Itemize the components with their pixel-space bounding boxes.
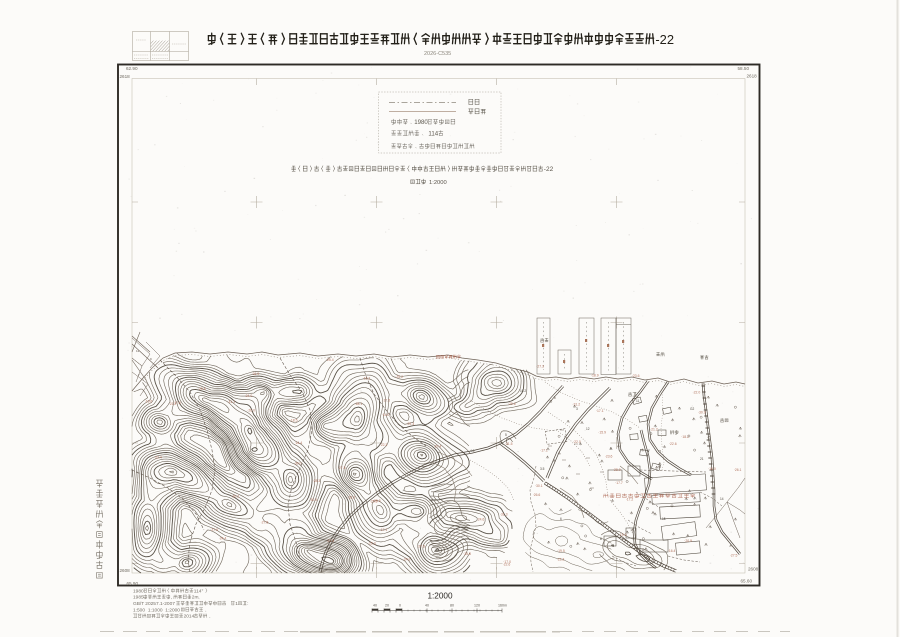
svg-text:·16.0: ·16.0: [708, 467, 716, 471]
svg-text:·23.6: ·23.6: [605, 455, 613, 459]
svg-text:2608: 2608: [120, 568, 131, 573]
svg-text:·26.6: ·26.6: [533, 493, 541, 497]
svg-text:·15.3: ·15.3: [368, 542, 376, 546]
svg-text:2618: 2618: [120, 74, 131, 79]
svg-text:2618: 2618: [747, 74, 758, 79]
svg-text:·18.5: ·18.5: [290, 419, 298, 423]
svg-text:·17.5: ·17.5: [382, 399, 390, 403]
svg-text:·20.6: ·20.6: [198, 387, 206, 391]
svg-text:114°: 114°: [194, 588, 204, 594]
svg-text:·21.2: ·21.2: [650, 428, 658, 432]
svg-text:7: 7: [648, 449, 650, 453]
svg-text:2608: 2608: [748, 567, 759, 572]
svg-text:·17.1: ·17.1: [596, 409, 604, 413]
svg-text:·22.0: ·22.0: [573, 440, 581, 444]
svg-text:1980: 1980: [133, 588, 144, 594]
svg-text:·28.3: ·28.3: [313, 479, 321, 483]
svg-text:·24.4: ·24.4: [219, 537, 227, 541]
svg-text:·26.0: ·26.0: [247, 409, 255, 413]
svg-text:GB/T: GB/T: [133, 601, 144, 607]
svg-text:2m: 2m: [192, 595, 199, 601]
svg-text:40: 40: [425, 604, 429, 608]
svg-text:·25.4: ·25.4: [326, 358, 334, 362]
svg-text:·29.5: ·29.5: [373, 499, 381, 503]
svg-text:1:1000: 1:1000: [148, 607, 163, 613]
svg-text:2026-C535: 2026-C535: [424, 51, 451, 57]
svg-text:·26.1: ·26.1: [734, 468, 742, 472]
svg-text:·17.2: ·17.2: [626, 497, 634, 501]
svg-text:·25.2: ·25.2: [395, 375, 403, 379]
svg-text:·22.3: ·22.3: [380, 443, 388, 447]
svg-text:80: 80: [450, 604, 454, 608]
svg-text:·24.3: ·24.3: [403, 558, 411, 562]
svg-text:·27.8: ·27.8: [261, 521, 269, 525]
svg-text:-22: -22: [655, 32, 674, 47]
svg-text:65.60: 65.60: [741, 579, 753, 584]
svg-text:·24.0: ·24.0: [245, 394, 253, 398]
svg-text:2014: 2014: [184, 614, 195, 620]
svg-text:·15.9: ·15.9: [598, 431, 606, 435]
svg-text:114: 114: [428, 131, 438, 138]
svg-text:3: 3: [576, 407, 578, 411]
svg-text:·30.0: ·30.0: [294, 462, 302, 466]
svg-text:10.2: 10.2: [520, 389, 526, 393]
svg-text:·28.1: ·28.1: [355, 402, 363, 406]
svg-text:20: 20: [385, 604, 389, 608]
svg-text:1985: 1985: [133, 595, 144, 601]
svg-text:11: 11: [636, 399, 640, 403]
svg-text:·17.1: ·17.1: [540, 449, 548, 453]
svg-text:,: ,: [171, 596, 172, 601]
svg-text:·24.6: ·24.6: [477, 517, 485, 521]
svg-text::: :: [247, 602, 248, 607]
svg-text:·30.0: ·30.0: [309, 498, 317, 502]
svg-text:1:2000: 1:2000: [165, 607, 180, 613]
svg-text:12: 12: [586, 427, 590, 431]
svg-text:20257.1-2007: 20257.1-2007: [145, 601, 175, 607]
svg-text:·17.7: ·17.7: [615, 481, 623, 485]
svg-text:·25.8: ·25.8: [463, 552, 471, 556]
svg-text:·27.5: ·27.5: [730, 553, 738, 557]
svg-text:1:2000: 1:2000: [429, 180, 447, 186]
svg-text:1:2000: 1:2000: [427, 592, 452, 601]
svg-text:·14.0: ·14.0: [382, 413, 390, 417]
svg-text:·29.3: ·29.3: [406, 422, 414, 426]
svg-text:21: 21: [700, 457, 704, 461]
svg-text:·30.9: ·30.9: [698, 410, 706, 414]
svg-text:·21.5: ·21.5: [326, 539, 334, 543]
svg-text:·31.1: ·31.1: [227, 400, 235, 404]
svg-text:65.90: 65.90: [127, 581, 139, 586]
svg-text:·21.5: ·21.5: [505, 442, 513, 446]
svg-text:·20.2: ·20.2: [231, 494, 239, 498]
svg-text:1: 1: [235, 601, 238, 607]
svg-text:·14.4: ·14.4: [295, 441, 303, 445]
svg-text:·27.3: ·27.3: [536, 365, 544, 369]
svg-text:·19.3: ·19.3: [619, 533, 627, 537]
svg-text:40: 40: [373, 604, 377, 608]
svg-text:·23.6: ·23.6: [632, 374, 640, 378]
svg-text:15: 15: [662, 517, 666, 521]
svg-text:·19.5: ·19.5: [557, 549, 565, 553]
svg-text:·31.9: ·31.9: [252, 372, 260, 376]
svg-text:-22: -22: [544, 166, 554, 173]
svg-text:·21.2: ·21.2: [169, 402, 177, 406]
svg-text:120: 120: [474, 604, 480, 608]
svg-text:14: 14: [720, 497, 724, 501]
svg-text:·31.2: ·31.2: [572, 403, 580, 407]
svg-text:1:500: 1:500: [133, 607, 145, 613]
svg-text:·16.4: ·16.4: [668, 549, 676, 553]
svg-text:·28.9: ·28.9: [613, 468, 621, 472]
svg-text:6: 6: [560, 517, 562, 521]
svg-text:·27.8: ·27.8: [338, 466, 346, 470]
svg-text:·16.3: ·16.3: [363, 376, 371, 380]
svg-text:·27.6: ·27.6: [210, 528, 218, 532]
svg-text:·22.4: ·22.4: [154, 456, 162, 460]
svg-text:8: 8: [600, 537, 602, 541]
svg-text:·22.3: ·22.3: [557, 558, 565, 562]
svg-text:·30.1: ·30.1: [535, 484, 543, 488]
svg-text:G2: G2: [690, 407, 694, 411]
svg-text:·20.9: ·20.9: [684, 539, 692, 543]
svg-text:·22.6: ·22.6: [669, 442, 677, 446]
svg-text:·18.9: ·18.9: [591, 374, 599, 378]
svg-text:·31.3: ·31.3: [500, 512, 508, 516]
svg-text:0: 0: [399, 604, 401, 608]
svg-text:58.50: 58.50: [738, 66, 750, 71]
svg-text:1980: 1980: [414, 119, 428, 126]
svg-text:160m: 160m: [498, 604, 507, 608]
svg-text:·27.5: ·27.5: [417, 544, 425, 548]
svg-text:5: 5: [505, 433, 507, 437]
svg-text:4.0: 4.0: [470, 449, 475, 453]
svg-text:·27.4: ·27.4: [434, 445, 442, 449]
svg-text:3.5: 3.5: [540, 467, 545, 471]
svg-text:·22.0: ·22.0: [693, 390, 701, 394]
svg-text:·29.6: ·29.6: [508, 402, 516, 406]
svg-text:62.90: 62.90: [126, 66, 138, 71]
svg-text:·19.6: ·19.6: [145, 399, 153, 403]
svg-text:·17.1: ·17.1: [380, 528, 388, 532]
svg-text:·18.3: ·18.3: [347, 496, 355, 500]
svg-text:·22.6: ·22.6: [503, 562, 511, 566]
